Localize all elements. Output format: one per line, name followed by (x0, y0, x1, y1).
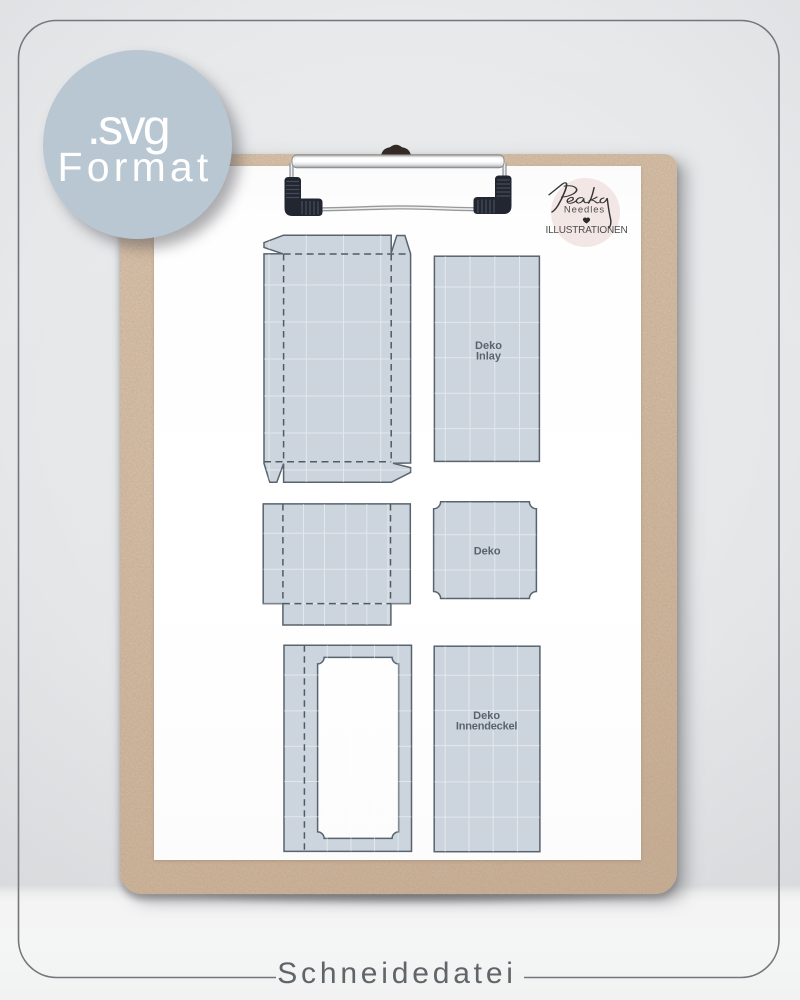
svg-text:Deko: Deko (474, 546, 501, 558)
svg-text:Innendeckel: Innendeckel (456, 721, 518, 733)
svg-text:Needles: Needles (564, 205, 605, 216)
svg-text:Inlay: Inlay (476, 350, 502, 362)
svg-text:ILLUSTRATIONEN: ILLUSTRATIONEN (545, 225, 627, 236)
